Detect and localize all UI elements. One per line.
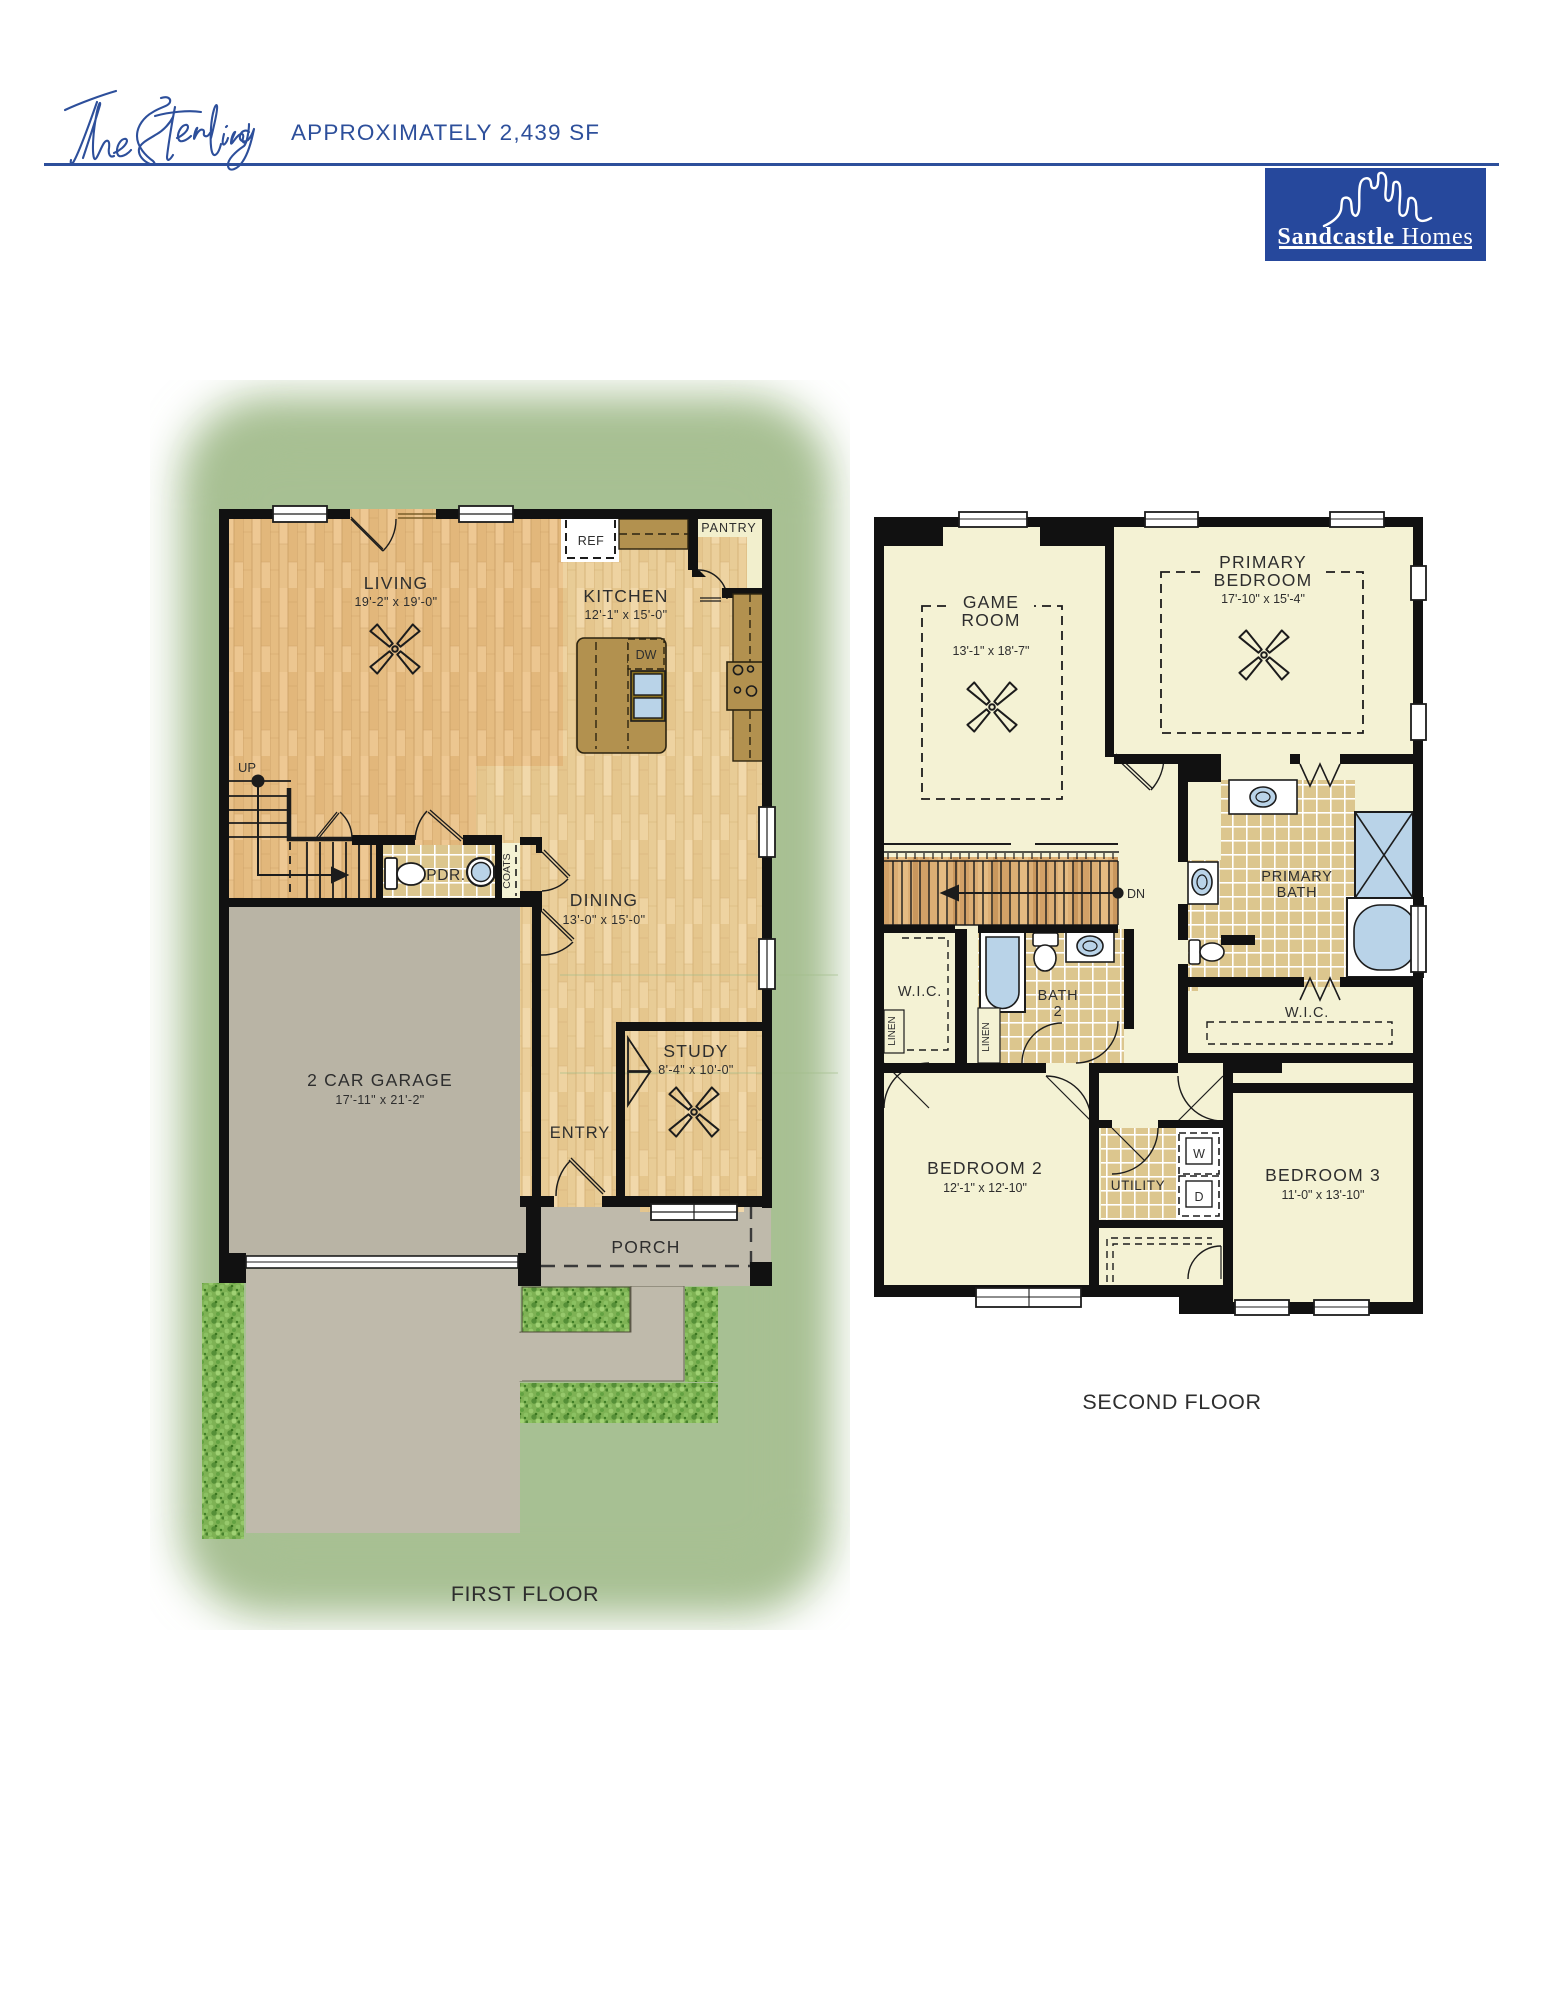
svg-text:13'-0" x 15'-0": 13'-0" x 15'-0"	[563, 913, 646, 927]
svg-text:ENTRY: ENTRY	[550, 1124, 611, 1142]
svg-text:KITCHEN: KITCHEN	[583, 586, 668, 606]
svg-text:LINEN: LINEN	[981, 1022, 992, 1051]
svg-text:PORCH: PORCH	[611, 1237, 680, 1257]
svg-text:PANTRY: PANTRY	[701, 521, 757, 535]
svg-text:2: 2	[1054, 1004, 1063, 1020]
svg-text:PRIMARY: PRIMARY	[1219, 552, 1307, 572]
svg-text:11'-0" x 13'-10": 11'-0" x 13'-10"	[1282, 1188, 1365, 1202]
svg-text:12'-1" x 15'-0": 12'-1" x 15'-0"	[585, 608, 668, 622]
svg-text:BEDROOM: BEDROOM	[1214, 570, 1313, 590]
svg-text:W.I.C.: W.I.C.	[1285, 1005, 1329, 1021]
svg-text:SECOND FLOOR: SECOND FLOOR	[1082, 1390, 1261, 1414]
svg-text:PDR.: PDR.	[426, 867, 465, 884]
svg-text:REF: REF	[578, 534, 605, 548]
svg-text:19'-2" x 19'-0": 19'-2" x 19'-0"	[355, 595, 438, 609]
svg-text:13'-1" x 18'-7": 13'-1" x 18'-7"	[953, 644, 1030, 658]
svg-text:BATH: BATH	[1038, 988, 1079, 1004]
svg-text:BEDROOM 2: BEDROOM 2	[927, 1158, 1043, 1178]
svg-text:12'-1" x 12'-10": 12'-1" x 12'-10"	[943, 1181, 1027, 1195]
svg-text:2 CAR GARAGE: 2 CAR GARAGE	[307, 1070, 453, 1090]
svg-text:D: D	[1194, 1190, 1203, 1204]
svg-text:UTILITY: UTILITY	[1111, 1178, 1165, 1193]
svg-text:DN: DN	[1127, 887, 1145, 901]
svg-text:BEDROOM 3: BEDROOM 3	[1265, 1165, 1381, 1185]
svg-text:BATH: BATH	[1277, 885, 1318, 901]
svg-text:PRIMARY: PRIMARY	[1261, 869, 1332, 885]
svg-text:UP: UP	[238, 760, 256, 775]
svg-text:STUDY: STUDY	[663, 1041, 728, 1061]
svg-text:W: W	[1193, 1147, 1205, 1161]
svg-text:DINING: DINING	[570, 890, 638, 910]
svg-text:ROOM: ROOM	[961, 610, 1020, 630]
svg-text:COATS: COATS	[501, 853, 513, 888]
svg-text:8'-4" x 10'-0": 8'-4" x 10'-0"	[658, 1063, 734, 1077]
svg-text:FIRST FLOOR: FIRST FLOOR	[451, 1582, 599, 1606]
svg-text:LINEN: LINEN	[887, 1016, 898, 1045]
svg-text:17'-10" x 15'-4": 17'-10" x 15'-4"	[1221, 592, 1305, 606]
svg-text:17'-11" x 21'-2": 17'-11" x 21'-2"	[335, 1093, 424, 1107]
svg-text:GAME: GAME	[963, 592, 1019, 612]
svg-text:W.I.C.: W.I.C.	[898, 984, 942, 1000]
svg-text:DW: DW	[636, 648, 657, 662]
svg-text:LIVING: LIVING	[364, 573, 429, 593]
